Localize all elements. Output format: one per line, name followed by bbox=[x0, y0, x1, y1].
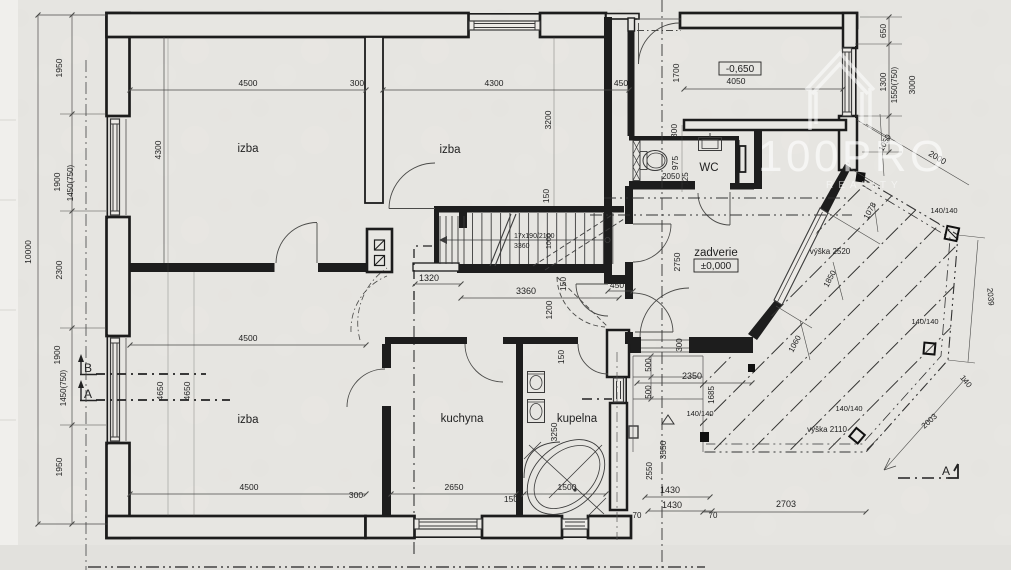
svg-text:4500: 4500 bbox=[240, 482, 259, 492]
svg-text:2050: 2050 bbox=[662, 172, 680, 181]
svg-text:2650: 2650 bbox=[445, 482, 464, 492]
svg-text:zadverie: zadverie bbox=[694, 247, 737, 259]
svg-text:150: 150 bbox=[541, 189, 551, 203]
svg-text:150: 150 bbox=[504, 494, 518, 504]
svg-text:1450(750): 1450(750) bbox=[59, 369, 68, 406]
svg-text:3360: 3360 bbox=[516, 286, 536, 296]
svg-text:300: 300 bbox=[349, 490, 363, 500]
svg-text:výška 2110: výška 2110 bbox=[807, 425, 847, 434]
svg-text:1900: 1900 bbox=[52, 345, 62, 364]
svg-text:-0,650: -0,650 bbox=[726, 64, 755, 75]
svg-text:kuchyna: kuchyna bbox=[441, 413, 484, 425]
svg-text:REALITY: REALITY bbox=[826, 180, 903, 191]
svg-text:2350: 2350 bbox=[682, 371, 702, 381]
svg-text:140/140: 140/140 bbox=[930, 206, 957, 215]
svg-text:300: 300 bbox=[669, 124, 679, 138]
svg-text:3000: 3000 bbox=[907, 75, 917, 94]
svg-text:1450(750): 1450(750) bbox=[66, 164, 75, 201]
svg-text:1950: 1950 bbox=[54, 58, 64, 77]
svg-text:B: B bbox=[84, 361, 92, 375]
svg-text:1200: 1200 bbox=[544, 300, 554, 319]
svg-text:±0,000: ±0,000 bbox=[701, 261, 732, 272]
svg-text:1300: 1300 bbox=[878, 72, 888, 91]
svg-text:2750: 2750 bbox=[672, 252, 682, 271]
svg-text:izba: izba bbox=[439, 144, 461, 156]
svg-text:1000: 1000 bbox=[546, 233, 553, 249]
svg-text:140/140: 140/140 bbox=[911, 317, 938, 326]
svg-text:140/140: 140/140 bbox=[835, 404, 862, 413]
svg-text:1900: 1900 bbox=[52, 172, 62, 191]
svg-text:izba: izba bbox=[237, 414, 259, 426]
svg-text:výška 2520: výška 2520 bbox=[810, 247, 851, 256]
svg-text:450: 450 bbox=[614, 78, 628, 88]
svg-text:1950: 1950 bbox=[54, 457, 64, 476]
svg-text:1685: 1685 bbox=[707, 386, 716, 404]
svg-text:1550(750): 1550(750) bbox=[890, 66, 899, 103]
svg-text:3360: 3360 bbox=[514, 243, 530, 250]
svg-text:100PRO: 100PRO bbox=[758, 132, 948, 181]
svg-text:2300: 2300 bbox=[54, 260, 64, 279]
svg-text:3550: 3550 bbox=[658, 440, 668, 459]
svg-text:450: 450 bbox=[610, 280, 624, 290]
svg-text:500: 500 bbox=[644, 358, 653, 372]
svg-text:300: 300 bbox=[350, 78, 364, 88]
svg-text:1500: 1500 bbox=[558, 482, 577, 492]
svg-text:140/140: 140/140 bbox=[686, 409, 713, 418]
svg-text:10000: 10000 bbox=[23, 240, 33, 264]
svg-text:1430: 1430 bbox=[662, 500, 682, 510]
svg-text:2550: 2550 bbox=[645, 462, 654, 480]
svg-text:izba: izba bbox=[237, 143, 259, 155]
svg-text:650: 650 bbox=[878, 24, 888, 38]
svg-text:1700: 1700 bbox=[671, 63, 681, 82]
svg-text:4300: 4300 bbox=[153, 140, 163, 159]
svg-text:4650: 4650 bbox=[155, 381, 165, 400]
svg-text:3250: 3250 bbox=[549, 422, 559, 441]
svg-text:1320: 1320 bbox=[419, 273, 439, 283]
svg-text:4650: 4650 bbox=[182, 381, 192, 400]
svg-text:2039: 2039 bbox=[985, 288, 996, 307]
svg-text:500: 500 bbox=[644, 385, 653, 399]
svg-text:4500: 4500 bbox=[239, 333, 258, 343]
svg-text:4500: 4500 bbox=[239, 78, 258, 88]
svg-text:150: 150 bbox=[556, 350, 566, 364]
svg-text:WC: WC bbox=[699, 162, 718, 174]
svg-text:3200: 3200 bbox=[543, 110, 553, 129]
svg-text:2703: 2703 bbox=[776, 499, 796, 509]
svg-text:70: 70 bbox=[633, 511, 642, 520]
svg-text:4050: 4050 bbox=[727, 76, 746, 86]
svg-text:975: 975 bbox=[670, 156, 680, 170]
svg-text:kupelna: kupelna bbox=[557, 413, 598, 425]
svg-text:300: 300 bbox=[675, 338, 684, 352]
svg-text:150: 150 bbox=[558, 277, 568, 291]
svg-text:125: 125 bbox=[681, 172, 690, 186]
svg-text:1430: 1430 bbox=[660, 485, 680, 495]
svg-text:4300: 4300 bbox=[485, 78, 504, 88]
svg-text:A: A bbox=[84, 387, 92, 401]
svg-text:A: A bbox=[942, 464, 950, 478]
